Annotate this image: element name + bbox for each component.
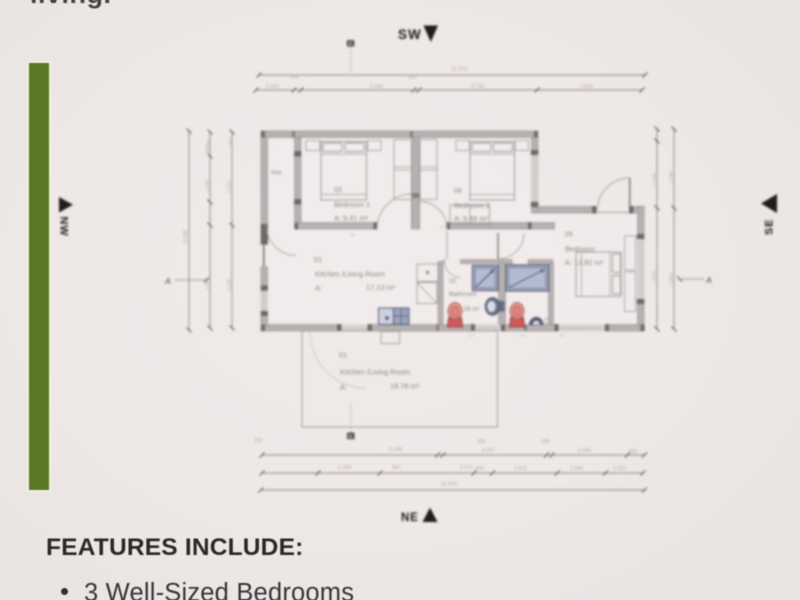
svg-text:200: 200 [228, 139, 234, 147]
svg-text:18.78 m²: 18.78 m² [390, 382, 420, 391]
svg-text:05: 05 [565, 232, 573, 239]
svg-text:SW: SW [398, 27, 422, 42]
svg-text:A: A [164, 276, 171, 286]
svg-text:100: 100 [408, 75, 417, 81]
svg-text:3.543: 3.543 [580, 84, 593, 90]
svg-text:4.2: 4.2 [520, 333, 526, 338]
svg-text:01: 01 [339, 351, 347, 360]
svg-text:02: 02 [449, 278, 457, 285]
svg-text:2.445: 2.445 [578, 448, 591, 454]
svg-text:03: 03 [334, 187, 342, 194]
svg-text:A: 9.41 m²: A: 9.41 m² [334, 214, 369, 223]
svg-text:Bedroom 1: Bedroom 1 [334, 200, 370, 209]
svg-text:3.371: 3.371 [460, 465, 473, 471]
svg-text:A:: A: [315, 284, 322, 293]
svg-text:NW: NW [58, 217, 70, 237]
svg-text:4.2: 4.2 [440, 224, 446, 229]
svg-text:400: 400 [475, 466, 484, 472]
svg-text:2.905: 2.905 [669, 273, 675, 285]
svg-text:300: 300 [628, 449, 637, 455]
svg-text:2.286: 2.286 [669, 171, 675, 183]
svg-text:2.100: 2.100 [227, 181, 233, 193]
svg-text:1.213: 1.213 [613, 466, 626, 472]
svg-text:2.190: 2.190 [227, 279, 233, 291]
svg-text:100: 100 [477, 439, 486, 445]
svg-text:Kitchen /Living Room: Kitchen /Living Room [315, 270, 385, 279]
svg-text:SE: SE [764, 219, 776, 235]
svg-text:3.297: 3.297 [482, 448, 495, 454]
svg-text:A: A [705, 275, 712, 285]
svg-text:200: 200 [254, 438, 263, 444]
svg-text:A: 9.48 m²: A: 9.48 m² [454, 214, 489, 223]
svg-text:NE: NE [401, 512, 419, 524]
svg-text:200: 200 [206, 139, 212, 147]
svg-text:11.910: 11.910 [451, 67, 468, 73]
svg-text:1.108: 1.108 [205, 180, 211, 192]
svg-text:2.280: 2.280 [338, 465, 351, 471]
svg-text:17.13 m²: 17.13 m² [366, 283, 396, 292]
svg-text:90: 90 [350, 232, 355, 237]
svg-text:A:: A: [340, 383, 347, 392]
svg-text:2.905: 2.905 [652, 271, 658, 283]
svg-text:04: 04 [454, 188, 462, 195]
svg-text:1.062: 1.062 [266, 84, 279, 90]
svg-text:5.299: 5.299 [389, 447, 402, 453]
svg-text:198: 198 [541, 439, 550, 445]
svg-text:4.2: 4.2 [469, 333, 475, 338]
svg-text:5.106: 5.106 [183, 230, 189, 243]
svg-text:987: 987 [392, 465, 401, 471]
svg-text:90: 90 [560, 333, 565, 338]
svg-text:11.910: 11.910 [441, 482, 458, 488]
svg-text:1.571: 1.571 [514, 466, 527, 472]
svg-text:3.736: 3.736 [471, 84, 484, 90]
svg-text:Step: Step [271, 170, 282, 176]
svg-text:3.500: 3.500 [370, 84, 383, 90]
svg-text:01: 01 [314, 255, 322, 264]
svg-text:1.590: 1.590 [570, 466, 583, 472]
svg-text:Kitchen /Living Room: Kitchen /Living Room [340, 368, 410, 377]
svg-text:A: 13.82 m²: A: 13.82 m² [565, 258, 604, 267]
svg-text:200: 200 [290, 75, 299, 81]
svg-text:2.186: 2.186 [652, 173, 658, 185]
svg-text:Bathroom: Bathroom [449, 291, 477, 298]
svg-text:Bedroom 2: Bedroom 2 [454, 201, 490, 210]
